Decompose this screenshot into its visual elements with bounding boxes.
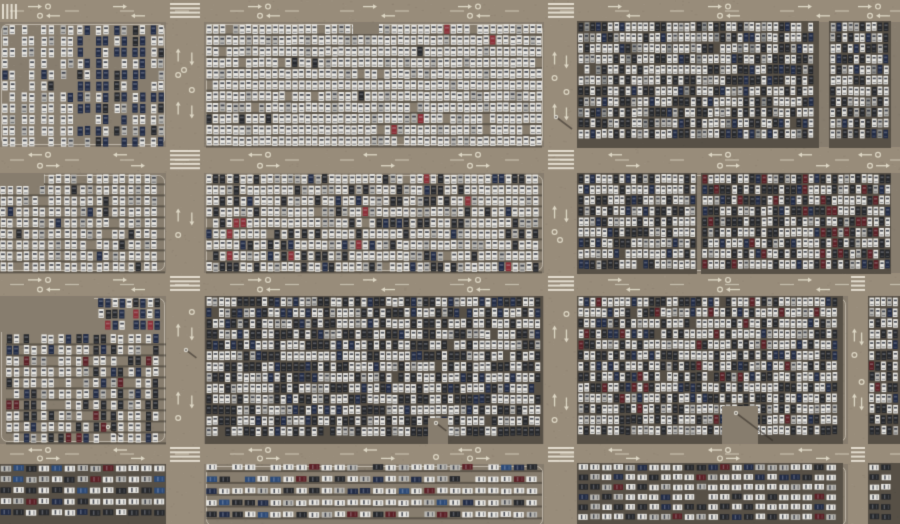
aerial-parking-lot-photo: Aerial top-down drone photograph of a va… xyxy=(0,0,900,524)
parking-lot-scene-canvas xyxy=(0,0,900,524)
